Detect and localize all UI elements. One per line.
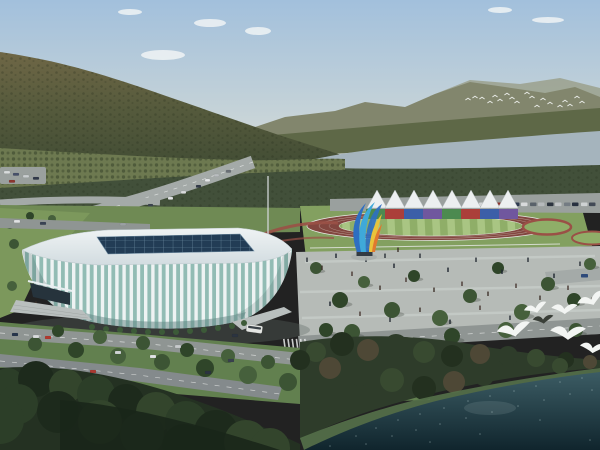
water-sparkle bbox=[559, 381, 561, 383]
bush bbox=[89, 324, 95, 330]
tree bbox=[180, 343, 194, 357]
bush bbox=[229, 323, 235, 329]
car bbox=[226, 170, 231, 173]
person-head bbox=[509, 315, 511, 317]
car bbox=[205, 371, 211, 374]
crosswalk-stripe bbox=[296, 339, 299, 348]
right-garden-ring-2 bbox=[572, 232, 600, 245]
tree bbox=[279, 373, 297, 391]
rainbow-banner-wall bbox=[366, 209, 518, 219]
tree bbox=[541, 277, 555, 291]
seagull bbox=[579, 340, 600, 356]
water-sparkle bbox=[489, 395, 491, 397]
tree bbox=[28, 337, 42, 351]
person bbox=[449, 321, 450, 324]
water-sparkle bbox=[467, 400, 469, 402]
person bbox=[329, 303, 330, 306]
person-head bbox=[335, 253, 337, 255]
cloud bbox=[532, 17, 564, 23]
bush bbox=[215, 325, 221, 331]
cloud bbox=[194, 19, 226, 27]
person-head bbox=[447, 267, 449, 269]
person-head bbox=[539, 295, 541, 297]
parked-car bbox=[521, 203, 528, 207]
banner-segment bbox=[480, 209, 499, 219]
water-sparkle bbox=[391, 435, 393, 437]
person-head bbox=[389, 317, 391, 319]
scene-svg bbox=[0, 0, 600, 450]
car bbox=[214, 174, 219, 177]
person-head bbox=[475, 257, 477, 259]
person-head bbox=[405, 277, 407, 279]
water-sparkle bbox=[569, 393, 571, 395]
water-sparkle bbox=[589, 439, 591, 441]
bush bbox=[201, 327, 207, 333]
person-head bbox=[501, 269, 503, 271]
person bbox=[384, 255, 385, 258]
car bbox=[45, 336, 51, 339]
banner-segment bbox=[385, 209, 404, 219]
cloud bbox=[245, 27, 271, 35]
person bbox=[447, 269, 448, 272]
water-sparkle bbox=[543, 399, 545, 401]
tree bbox=[196, 359, 214, 377]
tree bbox=[474, 366, 494, 386]
branch-road bbox=[0, 200, 160, 203]
tree bbox=[330, 332, 354, 356]
person-head bbox=[579, 261, 581, 263]
car bbox=[33, 335, 39, 338]
person bbox=[539, 297, 540, 300]
tree bbox=[110, 348, 126, 364]
water-sparkle bbox=[491, 411, 493, 413]
person bbox=[419, 255, 420, 258]
banner-segment bbox=[404, 209, 423, 219]
car bbox=[228, 359, 234, 362]
person bbox=[501, 271, 502, 274]
person bbox=[509, 317, 510, 320]
person bbox=[393, 265, 394, 268]
person-head bbox=[384, 253, 386, 255]
person bbox=[359, 313, 360, 316]
car bbox=[23, 175, 29, 178]
banner-segment bbox=[461, 209, 480, 219]
bush bbox=[241, 320, 247, 326]
person-head bbox=[397, 247, 399, 249]
person-head bbox=[379, 285, 381, 287]
person-head bbox=[393, 263, 395, 265]
water-sparkle bbox=[479, 433, 481, 435]
bush bbox=[131, 328, 137, 334]
water-sparkle bbox=[419, 413, 421, 415]
person bbox=[397, 249, 398, 252]
water-sparkle bbox=[397, 419, 399, 421]
plaza bbox=[283, 246, 600, 352]
tree bbox=[154, 354, 170, 370]
car bbox=[13, 173, 19, 176]
crosswalk-stripe bbox=[283, 339, 286, 348]
banner-segment bbox=[423, 209, 442, 219]
car bbox=[175, 345, 181, 348]
tree bbox=[413, 341, 435, 363]
banner-segment bbox=[499, 209, 518, 219]
person-head bbox=[567, 285, 569, 287]
cloud bbox=[488, 7, 512, 13]
person bbox=[419, 309, 420, 312]
person-head bbox=[515, 283, 517, 285]
car bbox=[148, 204, 153, 207]
bush bbox=[173, 329, 179, 335]
tree bbox=[552, 358, 568, 374]
parked-car bbox=[547, 203, 554, 207]
tree bbox=[26, 212, 34, 220]
person bbox=[475, 259, 476, 262]
tree bbox=[136, 336, 150, 350]
car bbox=[33, 177, 39, 180]
tree bbox=[319, 357, 341, 379]
person-head bbox=[487, 291, 489, 293]
tree bbox=[332, 292, 348, 308]
person-head bbox=[527, 257, 529, 259]
tree bbox=[384, 302, 400, 318]
person bbox=[527, 259, 528, 262]
tree bbox=[261, 355, 275, 369]
car bbox=[40, 222, 46, 225]
car bbox=[120, 223, 126, 226]
cloud bbox=[118, 9, 142, 15]
person bbox=[433, 289, 434, 292]
bush bbox=[145, 329, 151, 335]
tree bbox=[7, 281, 17, 291]
person-head bbox=[419, 253, 421, 255]
roof-skylight-grid bbox=[97, 234, 254, 254]
parked-car bbox=[581, 203, 588, 207]
person bbox=[351, 273, 352, 276]
water-sparkle bbox=[375, 427, 377, 429]
tree bbox=[432, 310, 448, 326]
car bbox=[150, 355, 156, 358]
tree bbox=[319, 323, 333, 337]
car bbox=[90, 370, 96, 373]
person-head bbox=[461, 281, 463, 283]
bush bbox=[187, 328, 193, 334]
water-sparkle bbox=[517, 405, 519, 407]
person-head bbox=[449, 319, 451, 321]
person bbox=[306, 259, 307, 262]
tree bbox=[463, 289, 477, 303]
water-sparkle bbox=[591, 389, 593, 391]
parked-car bbox=[530, 203, 537, 207]
person bbox=[579, 263, 580, 266]
person bbox=[321, 267, 322, 270]
car bbox=[4, 171, 10, 174]
tree bbox=[470, 344, 490, 364]
person-head bbox=[433, 287, 435, 289]
tree bbox=[443, 371, 465, 393]
crosswalk-stripe bbox=[291, 339, 294, 348]
parked-car bbox=[538, 203, 545, 207]
water-sparkle bbox=[535, 385, 537, 387]
car bbox=[168, 197, 173, 200]
person-head bbox=[359, 311, 361, 313]
parked-car bbox=[572, 203, 579, 207]
person bbox=[379, 287, 380, 290]
tree bbox=[52, 325, 64, 337]
tree bbox=[348, 362, 372, 386]
water-sparkle bbox=[329, 445, 331, 447]
water-sparkle bbox=[429, 441, 431, 443]
car bbox=[232, 334, 238, 337]
tree bbox=[239, 366, 257, 384]
tree bbox=[358, 276, 370, 288]
tree bbox=[527, 349, 545, 367]
tree bbox=[384, 334, 408, 358]
car bbox=[115, 351, 121, 354]
person bbox=[567, 287, 568, 290]
bush bbox=[117, 327, 123, 333]
person-head bbox=[351, 271, 353, 273]
car bbox=[12, 333, 18, 336]
tree bbox=[68, 342, 84, 358]
person bbox=[405, 279, 406, 282]
person-head bbox=[419, 307, 421, 309]
person bbox=[487, 293, 488, 296]
tree bbox=[498, 346, 518, 366]
water-glow bbox=[464, 401, 516, 415]
water-sparkle bbox=[365, 443, 367, 445]
person-head bbox=[35, 301, 37, 303]
person-head bbox=[321, 265, 323, 267]
person bbox=[479, 307, 480, 310]
person-head bbox=[329, 301, 331, 303]
person bbox=[515, 285, 516, 288]
parked-car bbox=[564, 203, 571, 207]
tree bbox=[441, 345, 463, 367]
crosswalk-stripe bbox=[287, 339, 290, 348]
person bbox=[335, 255, 336, 258]
tree bbox=[93, 330, 107, 344]
tree bbox=[310, 262, 322, 274]
right-garden-ring bbox=[523, 220, 571, 235]
person bbox=[553, 275, 554, 278]
person bbox=[461, 283, 462, 286]
car bbox=[205, 179, 210, 182]
car bbox=[9, 180, 15, 183]
bush bbox=[159, 329, 165, 335]
person bbox=[389, 319, 390, 322]
water-sparkle bbox=[415, 429, 417, 431]
water-sparkle bbox=[465, 417, 467, 419]
cloud bbox=[141, 50, 185, 60]
water-sparkle bbox=[439, 423, 441, 425]
aerial-sports-complex-render bbox=[0, 0, 600, 450]
tree bbox=[290, 350, 310, 370]
tree bbox=[584, 258, 596, 270]
water-sparkle bbox=[355, 435, 357, 437]
water-sparkle bbox=[513, 390, 515, 392]
person-head bbox=[479, 305, 481, 307]
parked-car bbox=[589, 203, 596, 207]
banner-segment bbox=[442, 209, 461, 219]
car bbox=[181, 191, 186, 194]
blue-car bbox=[581, 274, 588, 278]
parked-car bbox=[555, 203, 562, 207]
car bbox=[196, 185, 201, 188]
tree bbox=[357, 339, 379, 361]
tree bbox=[380, 368, 404, 392]
person-head bbox=[306, 257, 308, 259]
tree bbox=[408, 270, 420, 282]
person-head bbox=[553, 273, 555, 275]
water-sparkle bbox=[581, 377, 583, 379]
water-sparkle bbox=[539, 419, 541, 421]
tree bbox=[583, 355, 597, 369]
car bbox=[14, 220, 20, 223]
tree bbox=[9, 239, 19, 249]
water-sparkle bbox=[443, 407, 445, 409]
